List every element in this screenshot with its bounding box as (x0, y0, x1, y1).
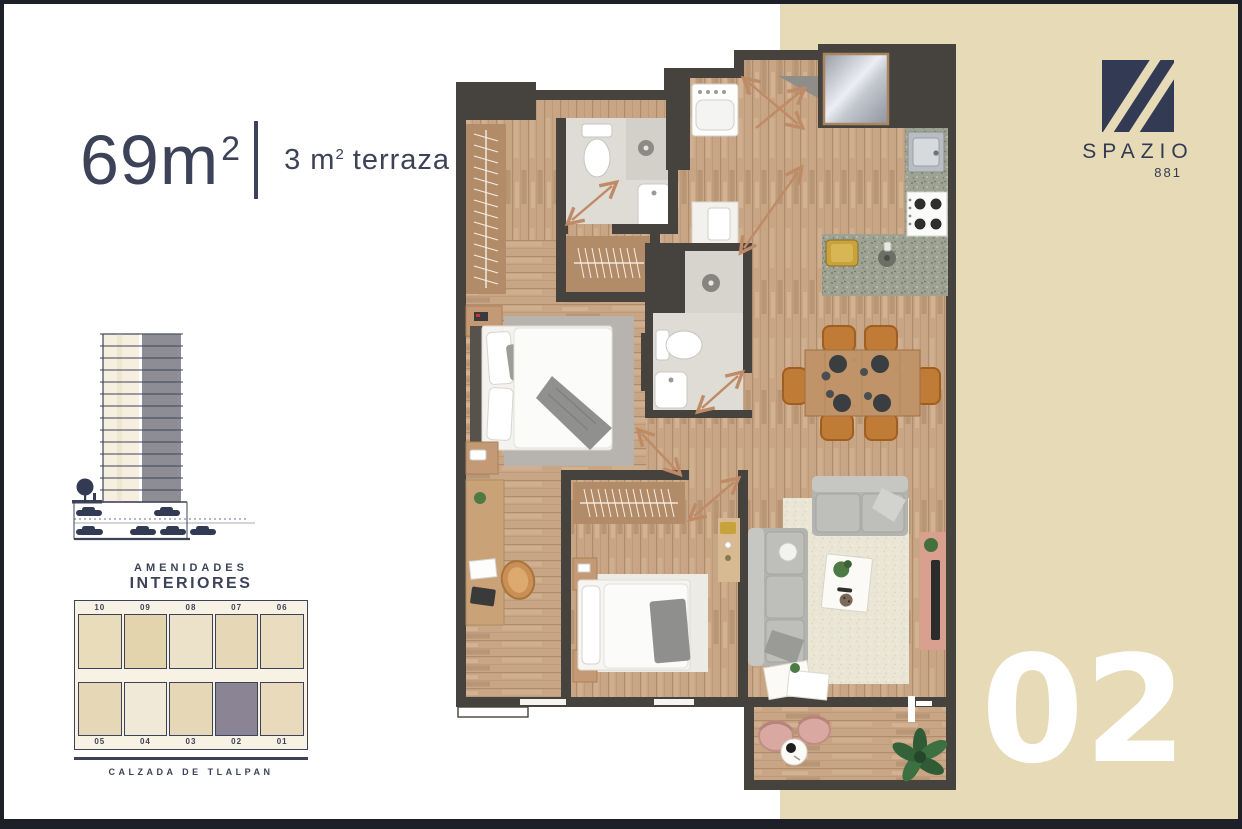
terrace-word: terraza (353, 144, 450, 176)
keyplan-unit-09 (124, 614, 168, 669)
brand-number: 881 (1082, 165, 1194, 180)
tower (100, 334, 183, 502)
unit-label-05: 05 (77, 736, 123, 748)
area-main-text: 69m (80, 121, 219, 199)
flyer-page: { "page": { "background": "#ffffff", "fr… (0, 0, 1242, 829)
keyplan-unit-02-highlighted (215, 682, 259, 736)
laundry-washer (692, 84, 738, 136)
unit-label-07: 07 (214, 602, 260, 614)
keyplan-diagram: 10 09 08 07 06 05 04 03 02 01 (74, 600, 308, 750)
tv-console (920, 532, 946, 650)
keyplan-unit-03 (169, 682, 213, 736)
unit-label-10: 10 (77, 602, 123, 614)
unit-number-badge: 02 (981, 636, 1187, 784)
floor-plan (448, 38, 960, 794)
bedroom2-closet (573, 482, 685, 524)
keyplan-unit-07 (215, 614, 259, 669)
vanity-shelf (718, 518, 740, 582)
entry-mirror (824, 54, 888, 124)
unit-label-03: 03 (168, 736, 214, 748)
sofa-long (812, 476, 908, 536)
keyplan-title-line2: INTERIORES (74, 575, 308, 593)
terrace-value: 3 m2terraza (284, 144, 450, 177)
keyplan-title-line1: AMENIDADES (74, 562, 308, 574)
headline-divider (254, 121, 258, 199)
unit-label-09: 09 (123, 602, 169, 614)
headline: 69m2 3 m2terraza (80, 120, 450, 200)
unit-label-08: 08 (168, 602, 214, 614)
walk-in-closet (466, 124, 506, 294)
keyplan-bottom-row (77, 682, 305, 736)
unit-label-02: 02 (214, 736, 260, 748)
terrace-number: 3 m (284, 144, 335, 176)
linen-closet (566, 236, 650, 292)
spazio-logo-icon (1102, 60, 1174, 132)
nightstand (466, 442, 498, 474)
desk (466, 480, 504, 625)
tree-icon (77, 479, 97, 503)
water-heater (692, 202, 738, 246)
terrace-table (781, 739, 807, 765)
street-label: CALZADA DE TLALPAN (74, 767, 308, 777)
headboard (470, 326, 482, 450)
toilet-icon (656, 330, 702, 360)
area-superscript: 2 (221, 130, 240, 168)
toilet-icon (582, 124, 612, 177)
keyplan-unit-06 (260, 614, 304, 669)
sofa-short (748, 528, 808, 666)
coffee-tray (821, 554, 872, 613)
keyplan-unit-05 (78, 682, 122, 736)
unit-label-06: 06 (259, 602, 305, 614)
keyplan-unit-04 (124, 682, 168, 736)
keyplan-block: AMENIDADES INTERIORES 10 09 08 07 06 05 … (74, 562, 308, 777)
sink-icon (655, 372, 687, 408)
unit-label-04: 04 (123, 736, 169, 748)
keyplan-top-labels: 10 09 08 07 06 (77, 602, 305, 614)
keyplan-unit-08 (169, 614, 213, 669)
kitchen-sink-icon (908, 132, 944, 172)
parked-cars (76, 507, 216, 535)
stove-icon (907, 192, 947, 236)
keyplan-unit-10 (78, 614, 122, 669)
bedroom2-bed (578, 580, 691, 670)
master-bed (482, 326, 612, 450)
area-value: 69m2 (80, 120, 238, 200)
keyplan-corridor (77, 669, 305, 682)
keyplan-bottom-labels: 05 04 03 02 01 (77, 736, 305, 748)
terrace-superscript: 2 (335, 146, 344, 163)
terrace-chair (798, 716, 830, 744)
unit-label-01: 01 (259, 736, 305, 748)
keyplan-top-row (77, 614, 305, 669)
building-elevation (60, 318, 260, 550)
brand-name: SPAZIO (1082, 140, 1194, 164)
keyplan-baseline (74, 757, 308, 760)
brand-block: SPAZIO 881 (1082, 60, 1194, 180)
keyplan-unit-01 (260, 682, 304, 736)
